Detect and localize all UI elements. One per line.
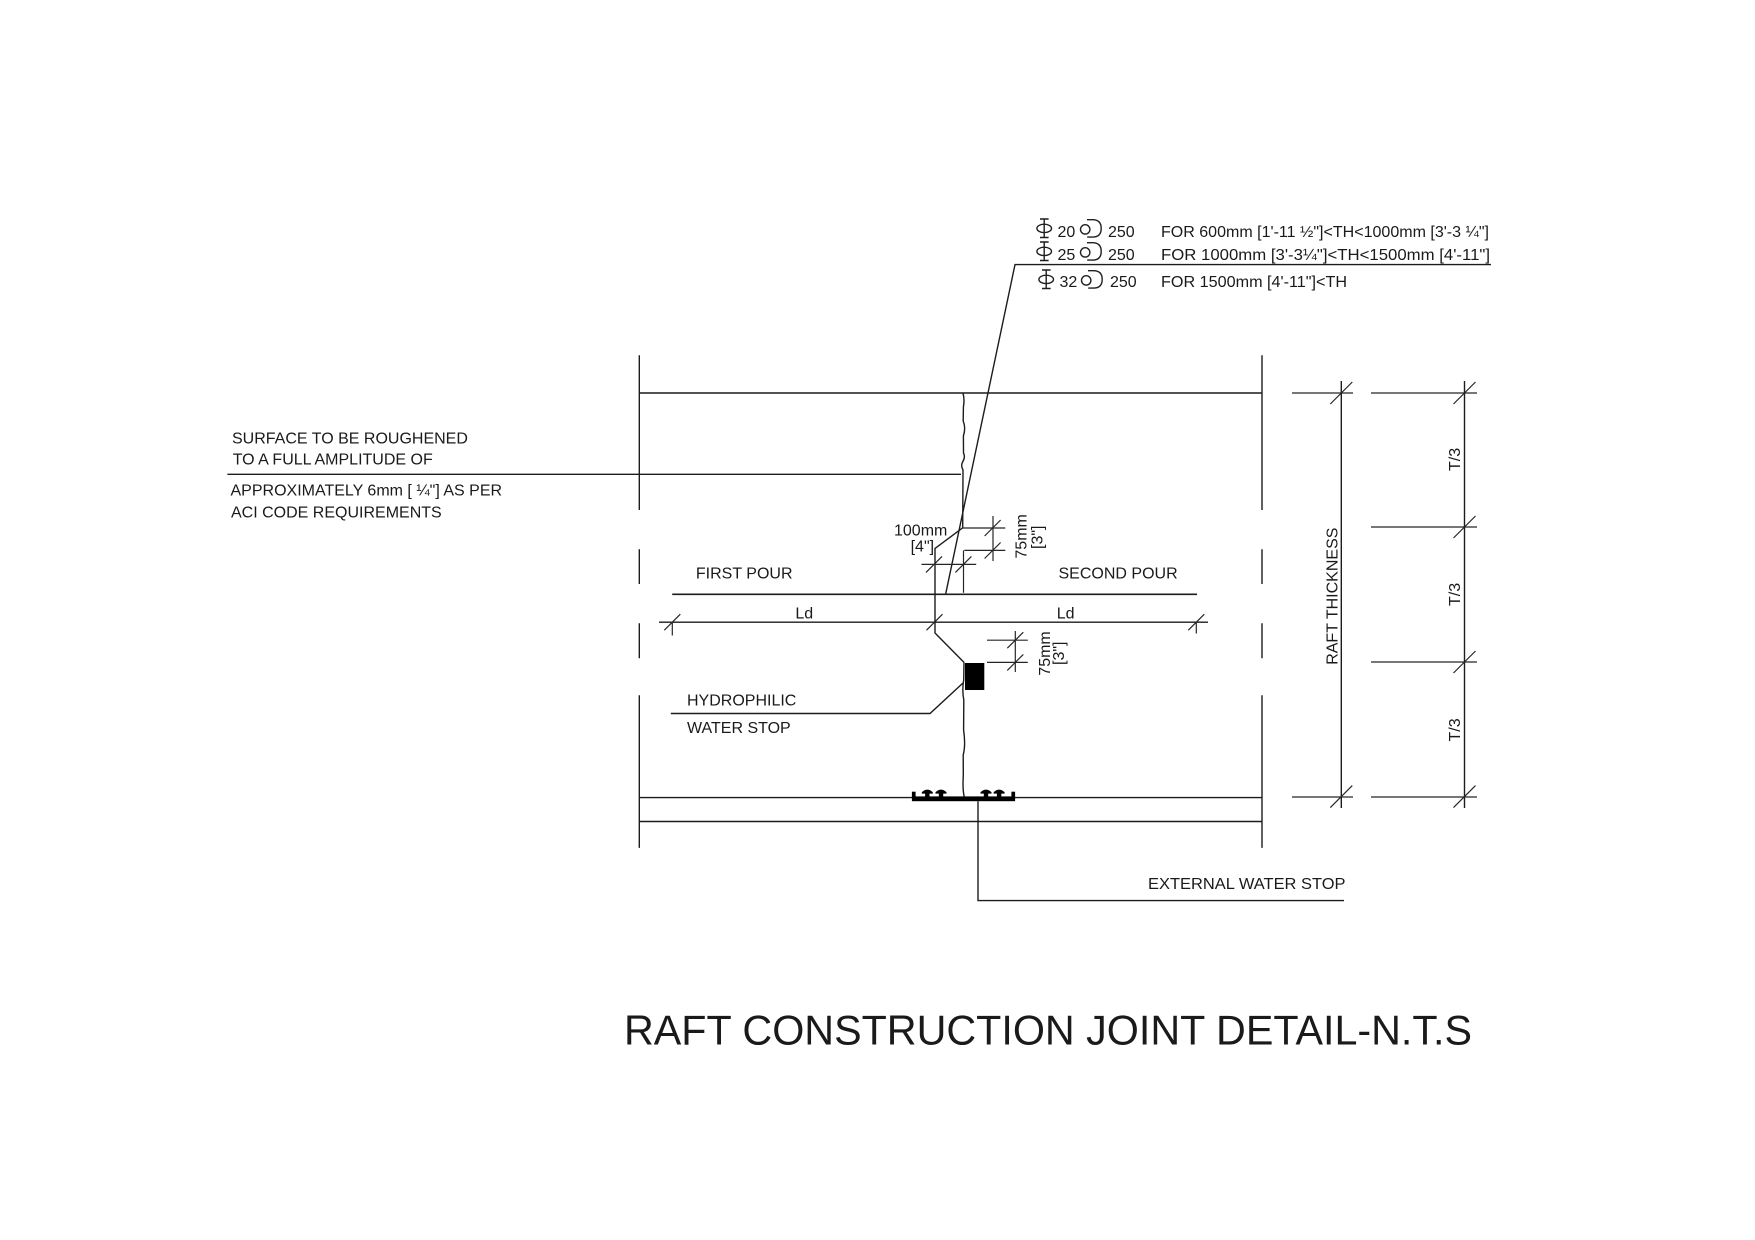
svg-text:[3"]: [3"] <box>1051 642 1068 665</box>
svg-text:T/3: T/3 <box>1447 583 1464 606</box>
svg-text:32: 32 <box>1060 274 1078 291</box>
svg-text:WATER STOP: WATER STOP <box>687 720 791 737</box>
svg-text:75mm: 75mm <box>1013 514 1030 558</box>
svg-text:APPROXIMATELY 6mm [ ¼"] AS PER: APPROXIMATELY 6mm [ ¼"] AS PER <box>231 483 503 500</box>
svg-text:100mm: 100mm <box>894 523 947 540</box>
svg-text:FOR 1000mm [3'-3¼"]<TH<1500mm: FOR 1000mm [3'-3¼"]<TH<1500mm [4'-11"] <box>1161 247 1490 264</box>
svg-text:[4"]: [4"] <box>911 539 934 556</box>
svg-text:HYDROPHILIC: HYDROPHILIC <box>687 693 796 710</box>
svg-text:EXTERNAL WATER STOP: EXTERNAL WATER STOP <box>1148 876 1346 893</box>
svg-text:250: 250 <box>1110 274 1137 291</box>
svg-text:T/3: T/3 <box>1447 448 1464 471</box>
svg-text:250: 250 <box>1108 224 1135 241</box>
svg-text:FOR 600mm [1'-11 ½"]<TH<1000mm: FOR 600mm [1'-11 ½"]<TH<1000mm [3'-3 ¼"] <box>1161 224 1489 241</box>
svg-text:250: 250 <box>1108 247 1135 264</box>
svg-text:SURFACE TO BE ROUGHENED: SURFACE TO BE ROUGHENED <box>232 430 468 447</box>
svg-text:25: 25 <box>1058 247 1076 264</box>
svg-text:TO A FULL AMPLITUDE OF: TO A FULL AMPLITUDE OF <box>233 452 433 469</box>
svg-text:ACI CODE REQUIREMENTS: ACI CODE REQUIREMENTS <box>231 504 442 521</box>
svg-text:T/3: T/3 <box>1447 718 1464 741</box>
svg-text:RAFT THICKNESS: RAFT THICKNESS <box>1325 528 1342 665</box>
svg-text:Ld: Ld <box>795 605 813 622</box>
svg-text:20: 20 <box>1058 224 1076 241</box>
svg-text:[3"]: [3"] <box>1030 526 1047 549</box>
svg-text:Ld: Ld <box>1057 605 1075 622</box>
svg-text:FIRST POUR: FIRST POUR <box>696 565 793 582</box>
svg-text:RAFT CONSTRUCTION JOINT DETAIL: RAFT CONSTRUCTION JOINT DETAIL-N.T.S <box>624 1007 1472 1054</box>
svg-text:FOR 1500mm [4'-11"]<TH: FOR 1500mm [4'-11"]<TH <box>1161 274 1347 291</box>
svg-text:SECOND POUR: SECOND POUR <box>1059 565 1178 582</box>
